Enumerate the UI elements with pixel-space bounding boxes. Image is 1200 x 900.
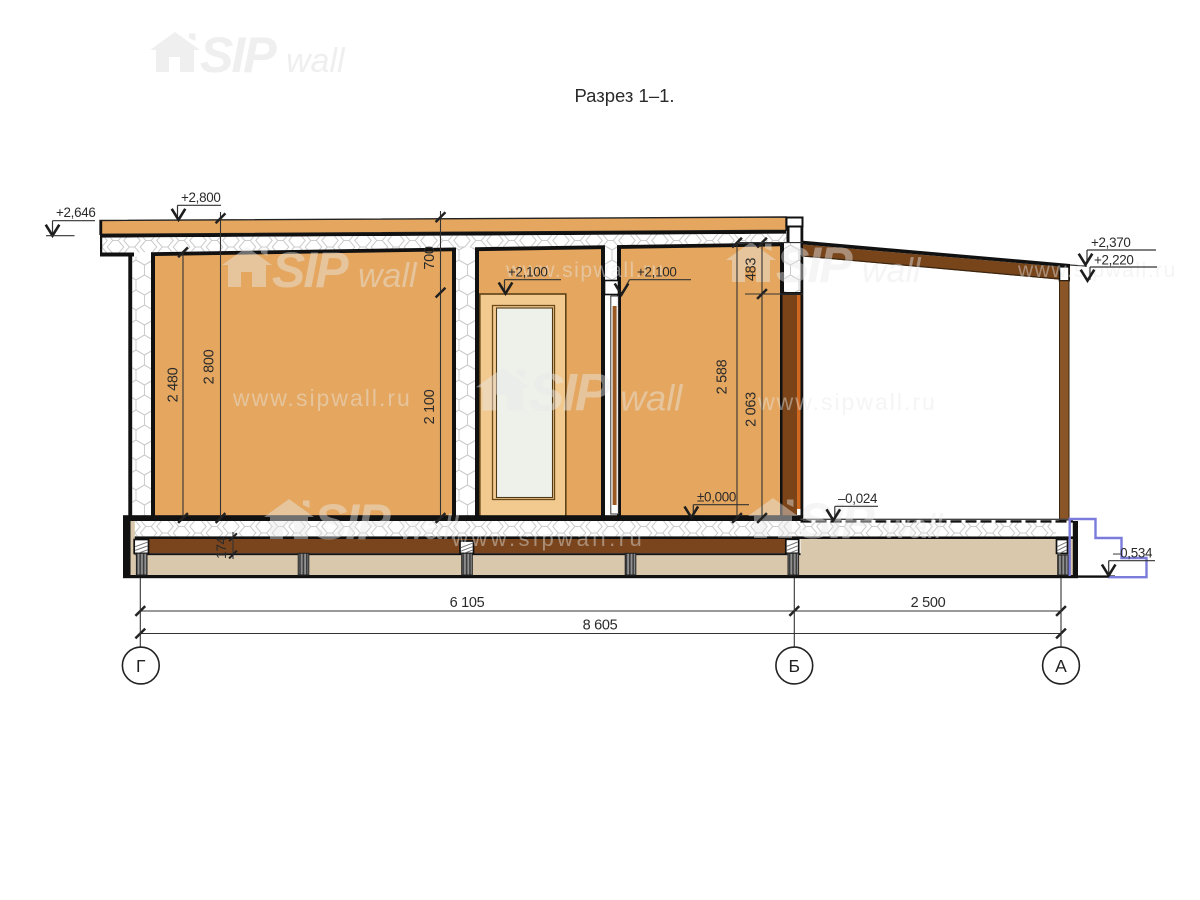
svg-text:wall: wall <box>400 509 460 547</box>
svg-text:SIP: SIP <box>272 242 349 298</box>
svg-text:–0,534: –0,534 <box>1113 546 1153 561</box>
svg-text:+2,370: +2,370 <box>1091 235 1131 250</box>
svg-text:wall: wall <box>862 252 922 290</box>
svg-text:Разрез 1–1.: Разрез 1–1. <box>574 85 674 106</box>
svg-text:–0,024: –0,024 <box>838 491 878 506</box>
svg-text:+2,100: +2,100 <box>637 264 677 279</box>
svg-text:±0,000: ±0,000 <box>697 490 736 505</box>
svg-text:SIP: SIP <box>529 364 611 423</box>
svg-text:Г: Г <box>136 656 146 676</box>
svg-text:2 588: 2 588 <box>715 359 731 394</box>
svg-text:wall: wall <box>286 42 346 80</box>
svg-text:wall: wall <box>358 257 418 295</box>
svg-text:SIP: SIP <box>200 27 277 83</box>
svg-text:2 063: 2 063 <box>744 392 760 427</box>
svg-text:www.sipwall.ru: www.sipwall.ru <box>232 385 412 411</box>
svg-text:+2,800: +2,800 <box>181 190 221 205</box>
svg-text:8 605: 8 605 <box>583 618 618 634</box>
svg-text:700: 700 <box>422 246 438 270</box>
svg-text:+2,100: +2,100 <box>508 264 548 279</box>
svg-text:483: 483 <box>744 258 760 282</box>
svg-text:SIP: SIP <box>314 494 391 550</box>
svg-text:2 100: 2 100 <box>422 389 438 424</box>
svg-text:2 500: 2 500 <box>911 595 946 611</box>
svg-text:2 800: 2 800 <box>202 349 218 384</box>
svg-text:www.sipwall.ru: www.sipwall.ru <box>451 526 645 551</box>
svg-text:Б: Б <box>789 656 800 676</box>
svg-text:+2,220: +2,220 <box>1094 252 1134 267</box>
svg-text:SIP: SIP <box>776 237 853 293</box>
svg-text:www.sipwall.ru: www.sipwall.ru <box>757 389 937 415</box>
svg-text:wall: wall <box>884 508 944 546</box>
svg-text:wall: wall <box>620 378 683 419</box>
svg-text:174: 174 <box>214 536 229 558</box>
svg-text:2 480: 2 480 <box>166 367 182 402</box>
svg-text:+2,646: +2,646 <box>56 205 96 220</box>
svg-text:6 105: 6 105 <box>450 595 485 611</box>
svg-text:А: А <box>1055 656 1067 676</box>
